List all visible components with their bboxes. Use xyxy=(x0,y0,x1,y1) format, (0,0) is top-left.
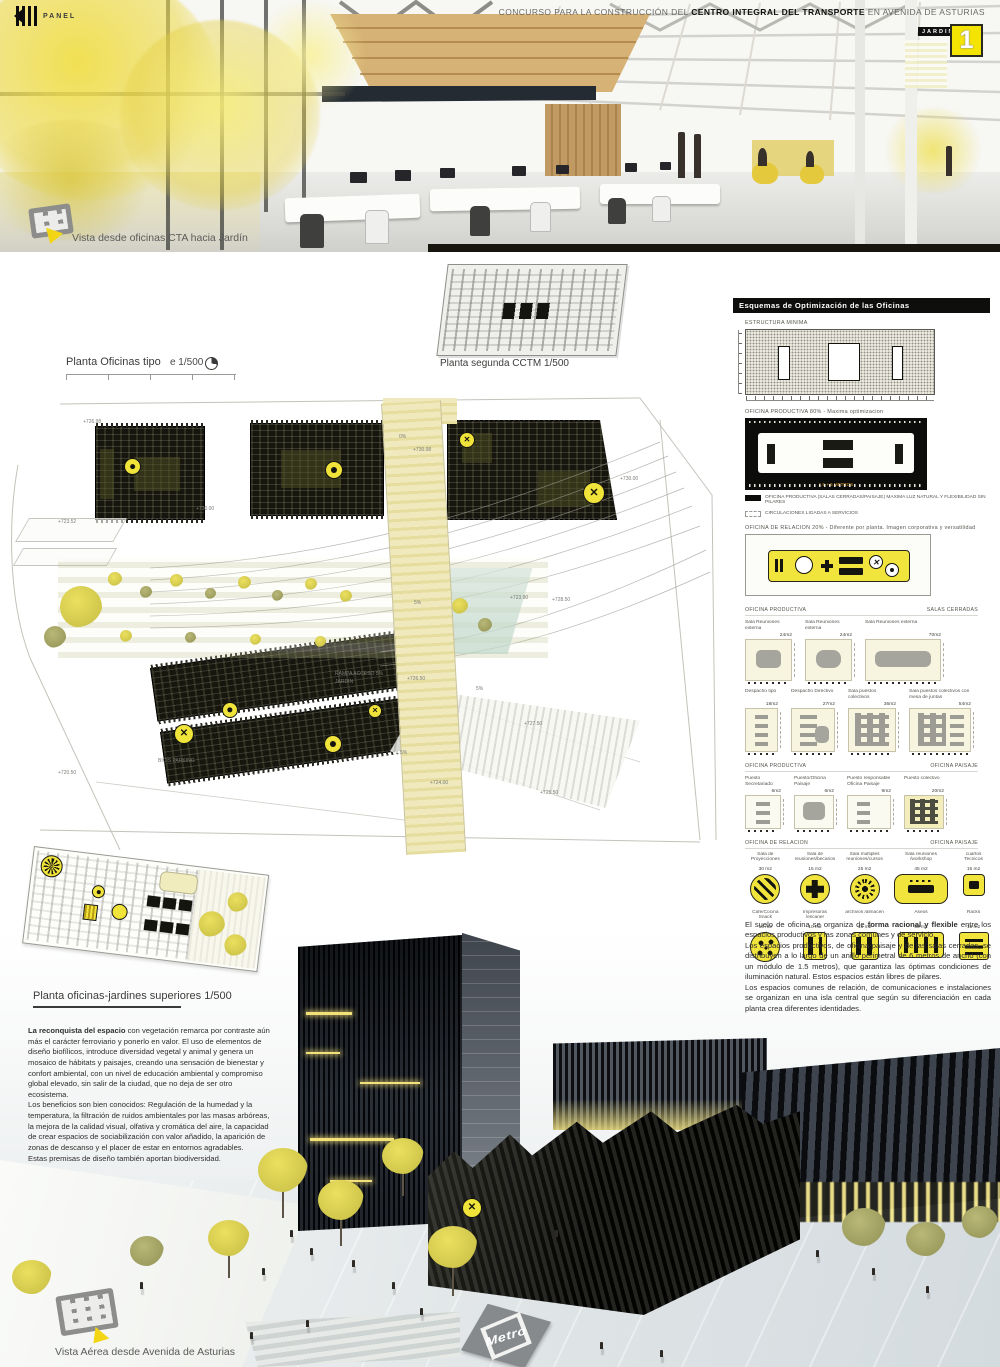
dimension-note: 1.5 + 6 METROS xyxy=(745,482,927,487)
person-figure xyxy=(290,1230,293,1237)
plan-annotation: 5% xyxy=(414,600,421,606)
room-diagram: Puesto/Oficina Paisaje 6m2 xyxy=(794,776,834,829)
rooms-row-1: Sala Reuniones externa 24m2 Sala Reunion… xyxy=(745,620,990,681)
person-figure xyxy=(420,1308,423,1315)
bottom-view-caption: Vista Aérea desde Avenida de Asturias xyxy=(55,1346,235,1358)
siteplan-labels: +726.98+723.52+730.000%+730.98+730.00+72… xyxy=(0,390,740,860)
section-row: OFICINA PRODUCTIVAOFICINA PAISAJE xyxy=(745,763,978,772)
room-diagram: Puesto responsable Oficina Paisaje 9m2 xyxy=(847,776,891,829)
page-title: CONCURSO PARA LA CONSTRUCCIÓN DEL CENTRO… xyxy=(499,7,985,17)
person-figure xyxy=(555,1230,558,1237)
plan-annotation: +726.98 xyxy=(83,419,101,425)
legend-swatch-white xyxy=(745,511,761,517)
plan-label-oficinas: Planta Oficinas tipo e 1/500 xyxy=(66,356,203,368)
dark-beam xyxy=(322,86,596,102)
rooms-row-3: Puesto Secretariado 6m2 Puesto/Oficina P… xyxy=(745,776,990,829)
estructura-diagram xyxy=(745,329,935,395)
person-figure xyxy=(660,1350,663,1357)
scale-bar xyxy=(66,374,236,380)
legend-item: OFICINA PRODUCTIVA (SALAS CERRADAS/PAISA… xyxy=(745,495,990,506)
plan-annotation: +730.98 xyxy=(413,447,431,453)
plan-annotation: +724.00 xyxy=(430,780,448,786)
room-diagram: Sala Reuniones externa 70m2 xyxy=(865,620,941,681)
room-diagram: Puesto Secretariado 6m2 xyxy=(745,776,781,829)
program-icon-item: Sala multiples reuniones/cursos25 m2 xyxy=(844,852,885,904)
workshop-icon xyxy=(894,874,948,904)
person-figure xyxy=(140,1282,143,1289)
north-arrow-icon xyxy=(205,357,218,370)
relacion-label: OFICINA DE RELACION 20% - Diferente por … xyxy=(745,525,990,531)
plan-annotation: +723.52 xyxy=(58,519,76,525)
section-title: Esquemas de Optimización de las Oficinas xyxy=(733,298,990,313)
person-figure xyxy=(250,1332,253,1339)
person-figure xyxy=(694,134,701,178)
proyecciones-icon xyxy=(750,874,780,904)
reuniones-icon xyxy=(800,874,830,904)
plan-annotation: +723.90 xyxy=(510,595,528,601)
cuarto-tecnico-icon xyxy=(963,874,985,896)
program-icons-row-1: Sala de Proyecciones30 m2 Sala de reunio… xyxy=(745,852,990,904)
plan-annotation: RAMPA ACCESO 5% xyxy=(335,671,383,677)
person-figure xyxy=(600,1342,603,1349)
brand: PANEL xyxy=(16,6,76,26)
panel-logo-icon xyxy=(16,6,38,26)
plan-annotation: +730.00 xyxy=(196,506,214,512)
relacion-diagram: ✕ xyxy=(745,534,931,596)
left-description: La reconquista del espacio con vegetació… xyxy=(28,1026,270,1164)
estructura-label: ESTRUCTURA MINIMA xyxy=(745,320,990,326)
core-circle xyxy=(39,854,64,879)
productiva-diagram: 1.5 + 6 METROS xyxy=(745,418,927,490)
panel-number-badge: 1 xyxy=(950,24,983,57)
plan-annotation: +727.50 xyxy=(524,721,542,727)
plan-segunda-cctm xyxy=(436,264,627,356)
room-diagram: Sala Reuniones externa 24m2 xyxy=(805,620,852,681)
person-figure xyxy=(310,1248,313,1255)
wood-ceiling-panel xyxy=(330,14,650,92)
person-figure xyxy=(306,1320,309,1327)
plan-annotation: BICIS PARKING xyxy=(158,758,195,764)
brand-label: PANEL xyxy=(43,13,76,20)
productiva-label: OFICINA PRODUCTIVA 80% - Maxima optimiza… xyxy=(745,409,990,415)
person-figure xyxy=(392,1282,395,1289)
person-figure xyxy=(352,1260,355,1267)
plan-annotation: JARDIN xyxy=(335,679,353,685)
plan-annotation: +728.50 xyxy=(552,597,570,603)
room-diagram: Sala puestos colectivos 36m2 xyxy=(848,689,896,752)
person-figure xyxy=(926,1286,929,1293)
plan-annotation: 0% xyxy=(399,434,406,440)
core-circle xyxy=(91,884,105,898)
program-icon-item: cuartos Tecnicos15 m2 xyxy=(957,852,990,896)
person-figure xyxy=(262,1268,265,1275)
plan-annotation: +730.00 xyxy=(620,476,638,482)
roof-pavilion xyxy=(159,871,199,895)
legend-item: CIRCULACIONES LIGADAS A SERVICIOS xyxy=(745,511,990,518)
room-diagram: Puesto colectivo 20m2 xyxy=(904,776,944,829)
competition-panel: PANEL CONCURSO PARA LA CONSTRUCCIÓN DEL … xyxy=(0,0,1000,1367)
room-diagram: Despacho Directivo 27m2 xyxy=(791,689,835,752)
mini-schedule-grid xyxy=(905,40,947,88)
top-view-caption: Vista desde oficinas CTA hacia Jardín xyxy=(72,232,248,244)
rooms-row-2: Despacho tipo 18m2 Despacho Directivo 27… xyxy=(745,689,990,752)
optimization-schemes: Esquemas de Optimización de las Oficinas… xyxy=(733,298,990,962)
person-figure xyxy=(678,132,685,178)
plan-annotation: 5% xyxy=(476,686,483,692)
room-diagram: Despacho tipo 18m2 xyxy=(745,689,778,752)
plan-annotation: 5% xyxy=(400,750,407,756)
section-row: OFICINA DE RELACIONOFICINA PAISAJE xyxy=(745,840,978,849)
program-icon-item: Sala reuniones /workshop45 m2 xyxy=(894,852,948,904)
right-description: El suelo de oficina se organiza de forma… xyxy=(745,920,991,1014)
room-diagram: Sala Reuniones externa 24m2 xyxy=(745,620,792,681)
section-row: OFICINA PRODUCTIVASALAS CERRADAS xyxy=(745,607,978,616)
core-circle xyxy=(462,1198,482,1218)
program-icon-item: Sala de Proyecciones30 m2 xyxy=(745,852,786,904)
render-office-interior xyxy=(0,0,1000,252)
plan-label-cctm: Planta segunda CCTM 1/500 xyxy=(440,358,569,369)
plan-label-jardines: Planta oficinas-jardines superiores 1/50… xyxy=(33,990,232,1002)
multiuso-icon xyxy=(850,874,880,904)
plan-annotation: +725.50 xyxy=(540,790,558,796)
person-figure xyxy=(816,1250,819,1257)
relacion-bar: ✕ xyxy=(768,550,910,582)
room-diagram: Sala puestos colectivos con mesa de junt… xyxy=(909,689,971,752)
plan-annotation: +726.50 xyxy=(407,676,425,682)
program-icon-item: Sala de reuniones/becarios15 m2 xyxy=(795,852,836,904)
plan-annotation: +720.50 xyxy=(58,770,76,776)
core-block xyxy=(502,303,552,319)
legend-swatch-black xyxy=(745,495,761,501)
person-figure xyxy=(872,1268,875,1275)
